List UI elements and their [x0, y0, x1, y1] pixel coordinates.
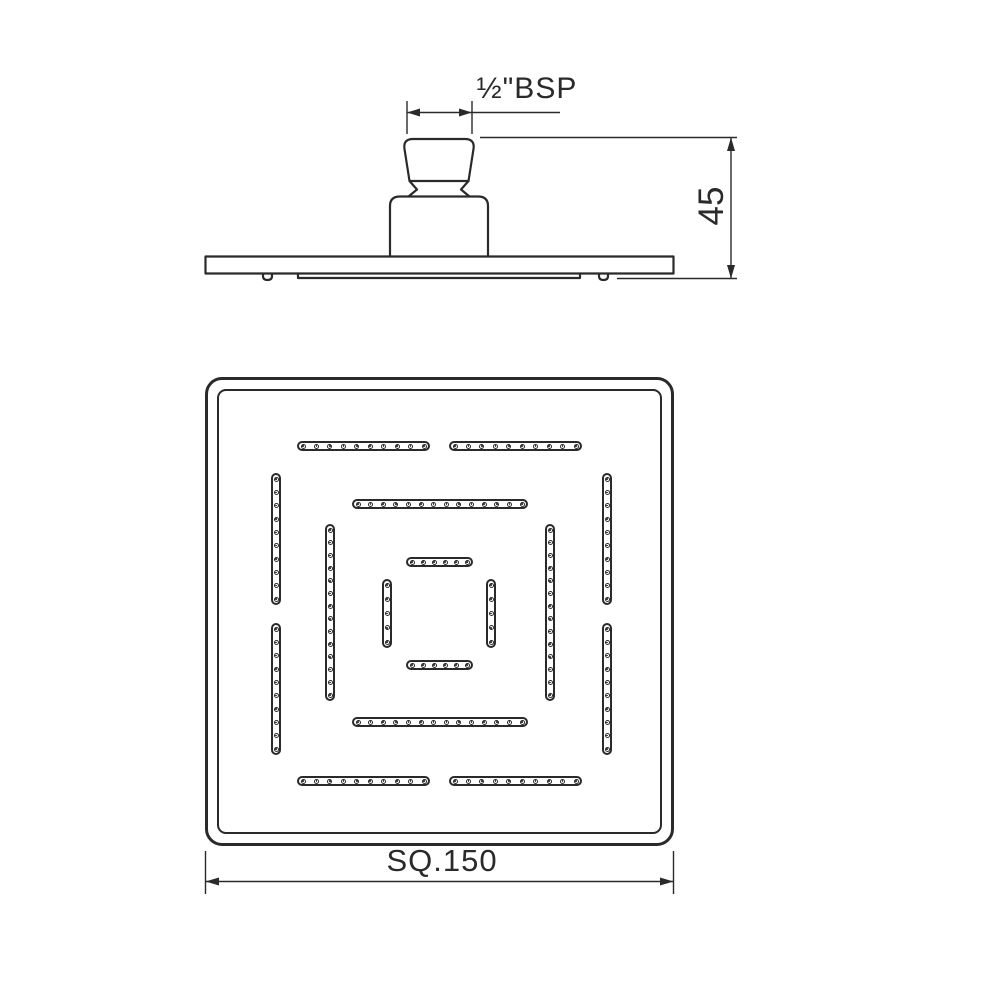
nozzle-hole	[274, 503, 279, 508]
nozzle-hole	[327, 444, 332, 449]
nozzle-hole	[274, 490, 279, 495]
nozzle-hole	[432, 663, 437, 668]
nozzle-strip-ring3-left	[382, 579, 392, 648]
nozzle-hole	[274, 733, 279, 738]
nozzle-hole	[482, 502, 487, 507]
nozzle-hole	[422, 444, 427, 449]
nozzle-hole	[432, 560, 437, 565]
nozzle-hole	[605, 653, 610, 658]
nozzle-hole	[274, 680, 279, 685]
nozzle-hole	[506, 779, 511, 784]
nozzle-hole	[328, 566, 333, 571]
nozzle-hole	[548, 591, 553, 596]
nozzle-hole	[328, 578, 333, 583]
nozzle-hole	[328, 667, 333, 672]
nozzle-strip-ring2-right	[545, 524, 555, 701]
nozzle-hole	[274, 653, 279, 658]
nozzle-hole	[314, 444, 319, 449]
nozzle-hole	[274, 557, 279, 562]
nozzle-hole	[368, 779, 373, 784]
nozzle-hole	[548, 604, 553, 609]
height-dimension-label: 45	[694, 172, 730, 240]
nozzle-hole	[479, 444, 484, 449]
nozzle-hole	[444, 720, 449, 725]
nozzle-hole	[328, 604, 333, 609]
nozzle-hole	[454, 560, 459, 565]
nozzle-hole	[274, 627, 279, 632]
nozzle-hole	[274, 640, 279, 645]
nozzle-hole	[605, 707, 610, 712]
nozzle-hole	[493, 444, 498, 449]
nozzle-hole	[605, 733, 610, 738]
nozzle-hole	[548, 566, 553, 571]
nozzle-hole	[419, 502, 424, 507]
nozzle-hole	[274, 583, 279, 588]
nozzle-hole	[469, 502, 474, 507]
nozzle-hole	[605, 490, 610, 495]
nozzle-hole	[328, 654, 333, 659]
nozzle-hole	[489, 640, 494, 645]
nozzle-hole	[605, 693, 610, 698]
nozzle-hole	[274, 747, 279, 752]
nozzle-hole	[494, 720, 499, 725]
nozzle-hole	[431, 720, 436, 725]
nozzle-hole	[574, 779, 579, 784]
nozzle-hole	[274, 693, 279, 698]
nozzle-hole	[482, 720, 487, 725]
nozzle-hole	[479, 779, 484, 784]
nozzle-hole	[548, 528, 553, 533]
nozzle-hole	[301, 779, 306, 784]
nozzle-hole	[328, 642, 333, 647]
nozzle-hole	[381, 779, 386, 784]
nozzle-hole	[393, 502, 398, 507]
nozzle-hole	[274, 707, 279, 712]
nozzle-hole	[274, 667, 279, 672]
nozzle-strip-ring1-right-bottom	[602, 623, 612, 755]
nozzle-hole	[327, 779, 332, 784]
nozzle-hole	[520, 502, 525, 507]
nozzle-hole	[506, 444, 511, 449]
nozzle-hole	[274, 517, 279, 522]
nozzle-hole	[354, 444, 359, 449]
nozzle-hole	[605, 570, 610, 575]
nozzle-hole	[421, 663, 426, 668]
nozzle-hole	[533, 779, 538, 784]
nozzle-strip-ring2-bottom	[352, 717, 528, 727]
nozzle-hole	[465, 663, 470, 668]
nozzle-hole	[328, 693, 333, 698]
nozzle-hole	[489, 597, 494, 602]
nozzle-hole	[548, 654, 553, 659]
nozzle-hole	[431, 502, 436, 507]
nozzle-hole	[489, 583, 494, 588]
nozzle-hole	[605, 680, 610, 685]
nozzle-hole	[507, 502, 512, 507]
nozzle-hole	[560, 444, 565, 449]
nozzle-hole	[547, 444, 552, 449]
nozzle-hole	[574, 444, 579, 449]
nozzle-hole	[328, 528, 333, 533]
nozzle-hole	[605, 583, 610, 588]
nozzle-hole	[605, 597, 610, 602]
nozzle-hole	[341, 779, 346, 784]
nozzle-strip-ring1-bottom-right	[449, 776, 582, 786]
nozzle-hole	[385, 597, 390, 602]
nozzle-hole	[548, 578, 553, 583]
nozzle-hole	[314, 779, 319, 784]
nozzle-hole	[520, 720, 525, 725]
nozzle-hole	[328, 591, 333, 596]
nozzle-strip-ring2-top	[352, 499, 528, 509]
nozzle-hole	[605, 747, 610, 752]
nozzle-hole	[605, 667, 610, 672]
nozzle-hole	[444, 502, 449, 507]
nozzle-hole	[406, 720, 411, 725]
nozzle-hole	[453, 444, 458, 449]
thread-size-label: ½"BSP	[452, 72, 602, 106]
nozzle-hole	[605, 543, 610, 548]
nozzle-hole	[605, 720, 610, 725]
width-dimension-label: SQ.150	[342, 843, 542, 879]
nozzle-hole	[274, 570, 279, 575]
nozzle-hole	[381, 502, 386, 507]
nozzle-strip-ring3-bottom	[406, 660, 473, 670]
nozzle-strip-ring1-right-top	[602, 473, 612, 605]
nozzle-hole	[548, 693, 553, 698]
nozzle-hole	[469, 720, 474, 725]
nozzle-strip-ring1-left-bottom	[271, 623, 281, 755]
nozzle-hole	[368, 502, 373, 507]
nozzle-hole	[274, 477, 279, 482]
nozzle-hole	[274, 530, 279, 535]
nozzle-hole	[341, 444, 346, 449]
nozzle-hole	[489, 611, 494, 616]
nozzle-hole	[560, 779, 565, 784]
nozzle-hole	[408, 444, 413, 449]
nozzle-hole	[385, 583, 390, 588]
nozzle-hole	[381, 444, 386, 449]
nozzle-hole	[421, 560, 426, 565]
nozzle-hole	[354, 779, 359, 784]
nozzle-hole	[548, 553, 553, 558]
nozzle-hole	[466, 444, 471, 449]
nozzle-strip-ring3-top	[406, 557, 473, 567]
nozzle-hole	[507, 720, 512, 725]
nozzle-hole	[443, 663, 448, 668]
nozzle-hole	[605, 530, 610, 535]
nozzle-hole	[422, 779, 427, 784]
nozzle-hole	[548, 680, 553, 685]
nozzle-hole	[385, 611, 390, 616]
nozzle-hole	[385, 625, 390, 630]
nozzle-hole	[274, 720, 279, 725]
technical-drawing-canvas: ½"BSP 45 SQ.150	[0, 0, 1000, 1000]
nozzle-hole	[385, 640, 390, 645]
nozzle-hole	[274, 597, 279, 602]
nozzle-strip-ring2-left	[325, 524, 335, 701]
nozzle-hole	[605, 640, 610, 645]
nozzle-hole	[605, 557, 610, 562]
nozzle-hole	[368, 444, 373, 449]
nozzle-hole	[395, 444, 400, 449]
nozzle-hole	[410, 663, 415, 668]
nozzle-hole	[548, 642, 553, 647]
nozzle-hole	[328, 540, 333, 545]
nozzle-hole	[453, 779, 458, 784]
nozzle-hole	[381, 720, 386, 725]
nozzle-hole	[408, 779, 413, 784]
nozzle-strip-ring3-right	[486, 579, 496, 648]
nozzle-strip-ring1-top-left	[297, 441, 430, 451]
nozzle-hole	[520, 779, 525, 784]
nozzle-hole	[328, 553, 333, 558]
nozzle-hole	[368, 720, 373, 725]
nozzle-hole	[605, 517, 610, 522]
nozzle-hole	[328, 680, 333, 685]
nozzle-hole	[419, 720, 424, 725]
nozzle-strip-ring1-left-top	[271, 473, 281, 605]
nozzle-hole	[465, 560, 470, 565]
nozzle-hole	[274, 543, 279, 548]
nozzle-hole	[356, 502, 361, 507]
nozzle-hole	[520, 444, 525, 449]
nozzle-strip-ring1-bottom-left	[297, 776, 430, 786]
nozzle-hole	[548, 540, 553, 545]
nozzle-hole	[489, 625, 494, 630]
nozzle-hole	[548, 616, 553, 621]
nozzle-hole	[456, 502, 461, 507]
nozzle-hole	[443, 560, 448, 565]
nozzle-hole	[356, 720, 361, 725]
nozzle-hole	[547, 779, 552, 784]
nozzle-hole	[466, 779, 471, 784]
nozzle-hole	[395, 779, 400, 784]
nozzle-strip-ring1-top-right	[449, 441, 582, 451]
nozzle-hole	[605, 627, 610, 632]
nozzle-hole	[301, 444, 306, 449]
nozzle-hole	[548, 629, 553, 634]
nozzle-hole	[605, 477, 610, 482]
nozzle-hole	[605, 503, 610, 508]
nozzle-hole	[493, 779, 498, 784]
nozzle-hole	[494, 502, 499, 507]
nozzle-hole	[548, 667, 553, 672]
nozzle-hole	[454, 663, 459, 668]
nozzle-hole	[456, 720, 461, 725]
nozzle-hole	[328, 629, 333, 634]
nozzle-hole	[533, 444, 538, 449]
nozzle-hole	[406, 502, 411, 507]
nozzle-hole	[393, 720, 398, 725]
nozzle-hole	[410, 560, 415, 565]
nozzle-hole	[328, 616, 333, 621]
